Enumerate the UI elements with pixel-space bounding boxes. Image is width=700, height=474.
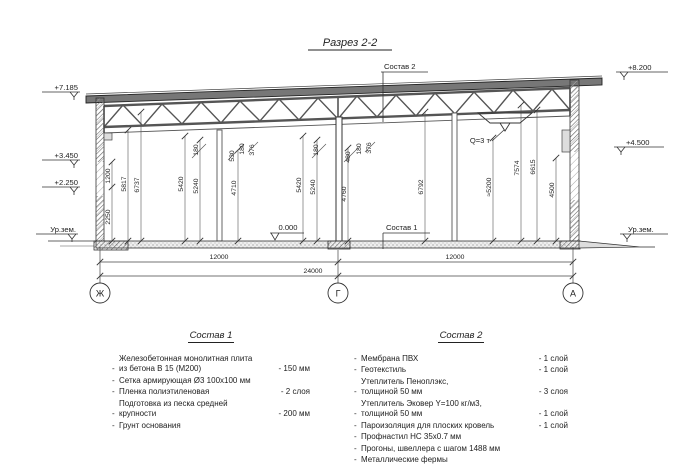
legend-composition-2: Состав 2 - Мембрана ПВХ - 1 слой - Геоте… bbox=[354, 330, 568, 467]
bullet: - bbox=[112, 387, 119, 398]
dim-label: 7574 bbox=[514, 160, 521, 175]
level-label: +3.450 bbox=[55, 151, 78, 160]
legend2-item-value: - 1 слой bbox=[539, 365, 568, 376]
dim-label: 5240 bbox=[310, 179, 317, 194]
legend1-item-text: Пленка полиэтиленовая bbox=[119, 387, 277, 398]
dim-label-span-right: 12000 bbox=[446, 254, 465, 261]
level-label: +8.200 bbox=[628, 63, 651, 72]
dim-label: 5240 bbox=[193, 178, 200, 193]
roof-composition-callout: Состав 2 bbox=[384, 62, 416, 71]
legend2-item-value: - 1 слой bbox=[539, 421, 568, 432]
left-wall-bracket bbox=[104, 133, 112, 140]
zero-level-mark: 0.000 bbox=[278, 223, 297, 232]
legend1-item: - Пленка полиэтиленовая - 2 слоя bbox=[112, 387, 310, 398]
dim-label: 376 bbox=[366, 142, 373, 154]
legend-composition-1: Состав 1 - Железобетонная монолитная пли… bbox=[112, 330, 310, 432]
hoist-capacity-label: Q=3 т bbox=[470, 136, 491, 145]
legend2-item-text: Утеплитель Пеноплэкс, толщиной 50 мм bbox=[361, 377, 535, 398]
legend1-item: - Железобетонная монолитная плита из бет… bbox=[112, 354, 310, 375]
bullet: - bbox=[354, 444, 361, 455]
dim-label: 2250 bbox=[105, 209, 112, 224]
dim-label: 530 bbox=[229, 150, 236, 162]
bullet: - bbox=[354, 387, 361, 398]
axis-label-zh: Ж bbox=[96, 289, 105, 299]
legend1-item-text: Сетка армирующая Ø3 100х100 мм bbox=[119, 376, 306, 387]
legend1-item-text: Грунт основания bbox=[119, 421, 306, 432]
legend2-item-text: Металлические фермы bbox=[361, 455, 564, 466]
dim-label: 5420 bbox=[178, 176, 185, 191]
level-marks-right: +8.200 +4.500 Ур.зем. bbox=[614, 63, 668, 242]
legend1-heading: Состав 1 bbox=[112, 330, 310, 343]
dim-label: 6792 bbox=[418, 179, 425, 194]
dim-label: 1200 bbox=[105, 168, 112, 183]
legend1-item-value: - 150 мм bbox=[279, 364, 310, 375]
dim-label-span-left: 12000 bbox=[210, 254, 229, 261]
horizontal-dimension-labels: 12000 24000 12000 bbox=[210, 254, 465, 275]
legend1-item: - Грунт основания bbox=[112, 421, 310, 432]
vertical-dimension-labels: 2250 1200 5817 6737 5420 5240 4710 5420 … bbox=[105, 142, 556, 224]
level-label: +7.185 bbox=[55, 83, 78, 92]
axis-label-a: А bbox=[570, 289, 576, 299]
legend2-item-value: - 1 слой bbox=[539, 409, 568, 420]
legend2-item: - Профнастил НС 35х0.7 мм bbox=[354, 432, 568, 443]
legend1-item: - Подготовка из песка средней крупности … bbox=[112, 399, 310, 420]
bullet: - bbox=[354, 354, 361, 365]
crane-beam-bracket bbox=[562, 130, 570, 152]
ground-level-label: Ур.зем. bbox=[628, 225, 654, 234]
apron-right bbox=[579, 241, 640, 248]
dim-label-total: 24000 bbox=[304, 268, 323, 275]
bullet: - bbox=[112, 421, 119, 432]
dim-label: 180 bbox=[313, 144, 320, 156]
legend2-item-value: - 3 слоя bbox=[539, 387, 568, 398]
dim-label: 376 bbox=[249, 144, 256, 156]
bullet: - bbox=[354, 455, 361, 466]
floor-composition-callout: Состав 1 bbox=[386, 223, 418, 232]
dim-label: ≈5200 bbox=[486, 177, 493, 196]
axis-markers: Ж Г А bbox=[90, 283, 583, 303]
ground-level-label: Ур.зем. bbox=[50, 225, 76, 234]
level-label: +2.250 bbox=[55, 178, 78, 187]
drawing-sheet: Разрез 2-2 bbox=[0, 0, 700, 474]
center-column bbox=[336, 117, 342, 241]
dim-label: 5420 bbox=[296, 177, 303, 192]
mid-column-left bbox=[217, 130, 222, 241]
legend2-item-text: Утеплитель Эковер Y=100 кг/м3, толщиной … bbox=[361, 399, 535, 420]
bullet: - bbox=[354, 409, 361, 420]
legend2-item-text: Профнастил НС 35х0.7 мм bbox=[361, 432, 564, 443]
dim-label: 180 bbox=[239, 143, 246, 155]
section-drawing: Разрез 2-2 bbox=[0, 0, 700, 474]
legend2-item: - Металлические фермы bbox=[354, 455, 568, 466]
legend2-item-text: Прогоны, швеллера с шагом 1488 мм bbox=[361, 444, 564, 455]
drawing-title: Разрез 2-2 bbox=[308, 37, 392, 50]
bullet: - bbox=[354, 421, 361, 432]
dim-label: 4710 bbox=[231, 180, 238, 195]
legend2-item: - Геотекстиль - 1 слой bbox=[354, 365, 568, 376]
legend2-item-text: Геотекстиль bbox=[361, 365, 535, 376]
dim-label: 180 bbox=[193, 144, 200, 156]
dim-label: 180 bbox=[356, 143, 363, 155]
dim-label: 4500 bbox=[549, 182, 556, 197]
page-title: Разрез 2-2 bbox=[323, 37, 378, 49]
legend1-item-text: Железобетонная монолитная плита из бетон… bbox=[119, 354, 275, 375]
legend2-item: - Утеплитель Эковер Y=100 кг/м3, толщино… bbox=[354, 399, 568, 420]
horizontal-dimensions bbox=[97, 247, 576, 283]
bullet: - bbox=[112, 409, 119, 420]
bullet: - bbox=[354, 432, 361, 443]
level-marks-left: +7.185 +3.450 +2.250 Ур.зем. bbox=[36, 83, 80, 242]
dim-label: 6615 bbox=[530, 159, 537, 174]
level-label: +4.500 bbox=[626, 138, 649, 147]
legend1-item-text: Подготовка из песка средней крупности bbox=[119, 399, 275, 420]
legend2-item-value: - 1 слой bbox=[539, 354, 568, 365]
dim-label: 4760 bbox=[341, 186, 348, 201]
dim-label: 6737 bbox=[134, 177, 141, 192]
bullet: - bbox=[112, 364, 119, 375]
foundation-right bbox=[560, 241, 580, 249]
legend1-item: - Сетка армирующая Ø3 100х100 мм bbox=[112, 376, 310, 387]
bullet: - bbox=[112, 376, 119, 387]
legend2-item: - Прогоны, швеллера с шагом 1488 мм bbox=[354, 444, 568, 455]
legend1-item-value: - 200 мм bbox=[279, 409, 310, 420]
bullet: - bbox=[354, 365, 361, 376]
legend2-item: - Мембрана ПВХ - 1 слой bbox=[354, 354, 568, 365]
legend2-item-text: Мембрана ПВХ bbox=[361, 354, 535, 365]
mid-column-right bbox=[452, 113, 457, 241]
legend2-item: - Утеплитель Пеноплэкс, толщиной 50 мм -… bbox=[354, 377, 568, 398]
dim-label: 5817 bbox=[121, 176, 128, 191]
legend2-heading: Состав 2 bbox=[354, 330, 568, 343]
dim-label: 480 bbox=[345, 151, 352, 163]
legend1-item-value: - 2 слоя bbox=[281, 387, 310, 398]
legend2-item: - Пароизоляция для плоских кровель - 1 с… bbox=[354, 421, 568, 432]
legend2-item-text: Пароизоляция для плоских кровель bbox=[361, 421, 535, 432]
axis-label-g: Г bbox=[336, 289, 341, 299]
